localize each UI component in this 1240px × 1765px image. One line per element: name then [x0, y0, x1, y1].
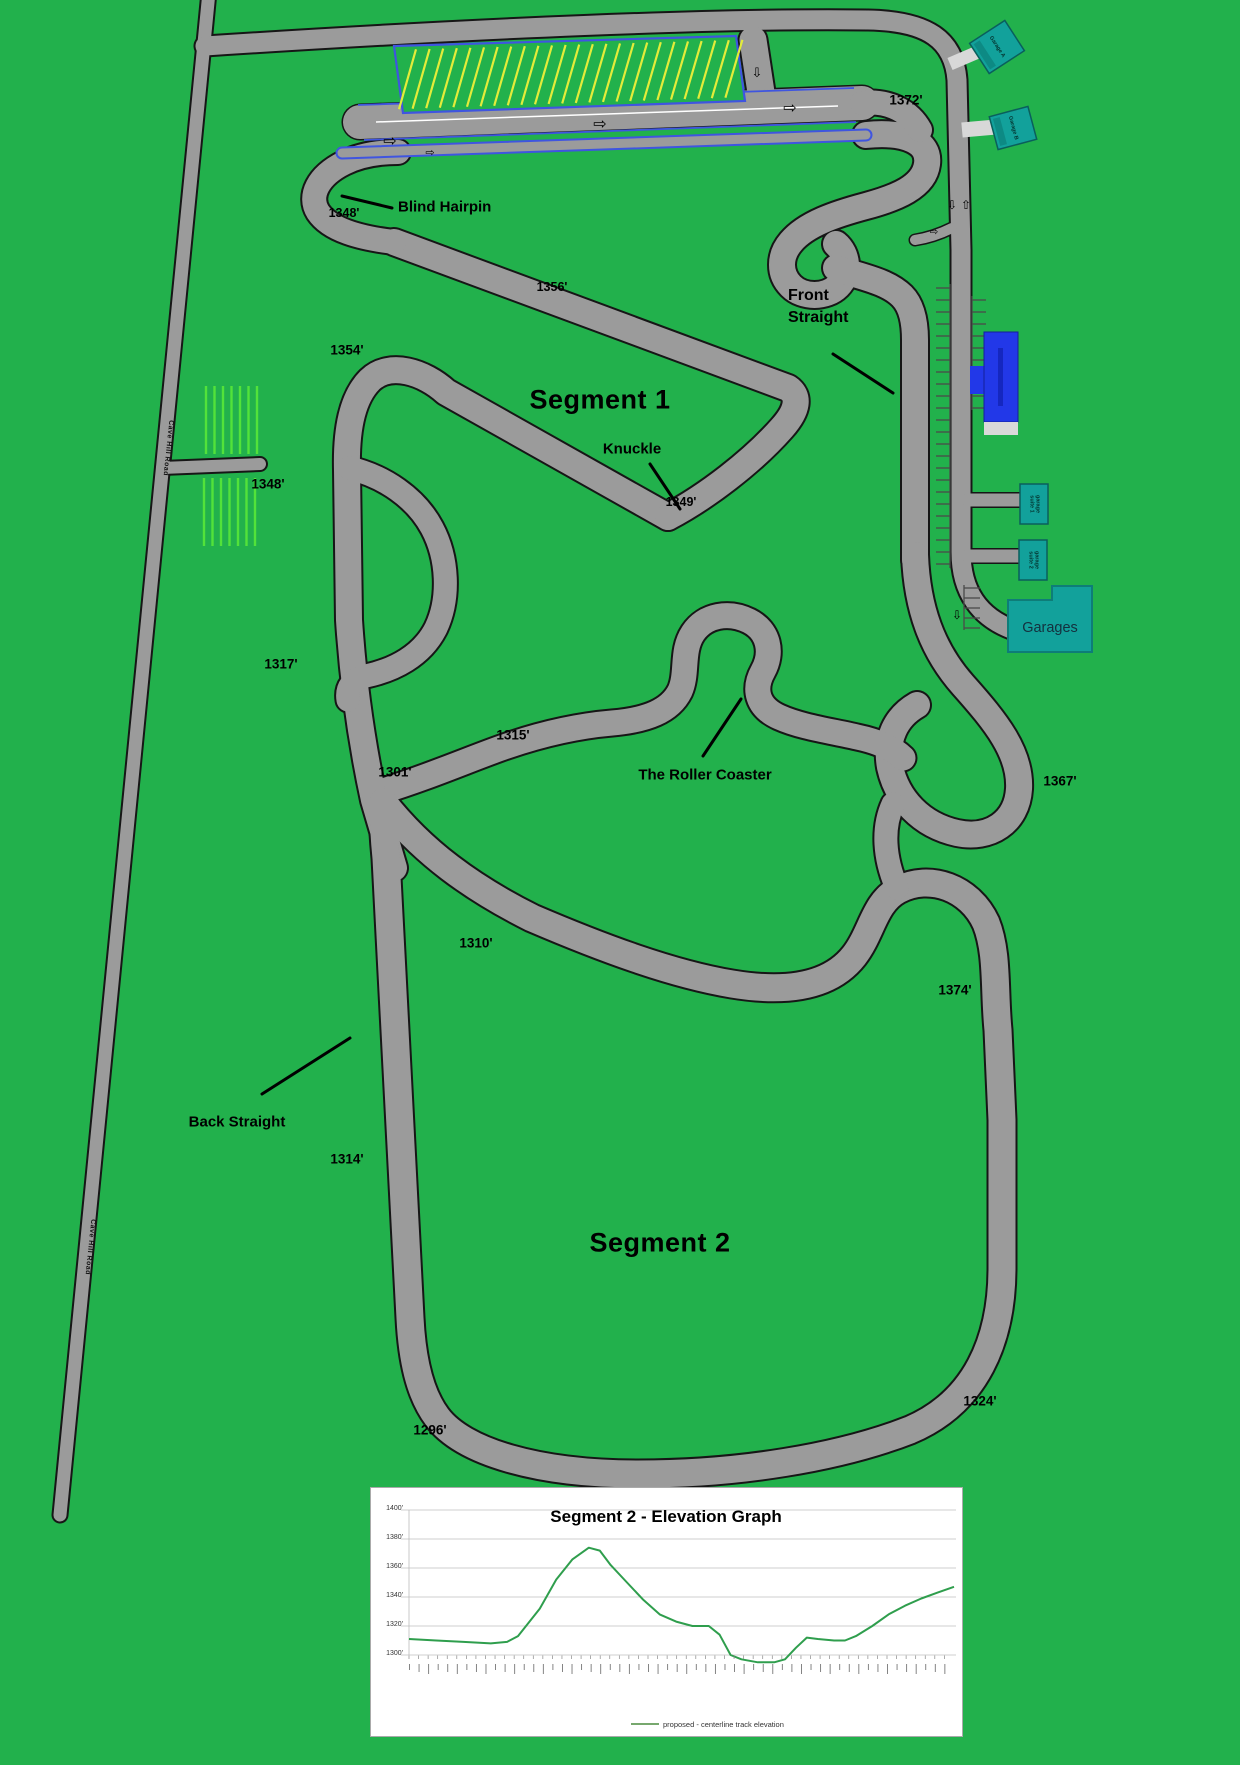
elevation-label-1348-hairpin: 1348' [329, 206, 360, 220]
elevation-label-1356: 1356' [537, 280, 568, 294]
elevation-label-1354: 1354' [330, 343, 363, 358]
elevation-label-1348-west: 1348' [251, 477, 284, 492]
corner-label-front-straight-line2: Straight [788, 309, 848, 327]
elevation-label-1310: 1310' [459, 936, 492, 951]
elevation-label-1315: 1315' [496, 728, 529, 743]
pointer-line-front-straight [833, 354, 893, 393]
access-road [162, 464, 260, 468]
y-tick-1300: 1300' [373, 1650, 403, 1657]
garage-suite-1-label-line1: garage [1034, 495, 1040, 513]
elevation-label-1324: 1324' [963, 1394, 996, 1409]
segment2-loop-casing [383, 802, 1002, 1474]
pointer-line-roller-coaster [703, 699, 741, 756]
elevation-label-1296: 1296' [413, 1423, 446, 1438]
garage-suite-2-label-line2: suite 2 [1027, 551, 1033, 569]
y-tick-1320: 1320' [373, 1621, 403, 1628]
elevation-label-1349: 1349' [666, 495, 697, 509]
track-map: ⇨ ⇨ ⇨ ⇨ ⇩ ⇩ ⇧ ⇨ ⇩ Segment 1 Segment 2 Bl… [0, 0, 1240, 1765]
garages-building [1008, 586, 1092, 652]
blue-building-apron [984, 422, 1018, 435]
elevation-label-1314: 1314' [330, 1152, 363, 1167]
cave-hill-road [60, 0, 209, 1515]
flow-arrow-down-icon: ⇩ [947, 198, 957, 212]
garage-suite-1-label: garage suite 1 [1028, 495, 1041, 513]
flow-arrow-down-icon: ⇩ [752, 66, 763, 81]
segment2-label: Segment 2 [589, 1228, 730, 1259]
corner-label-roller-coaster: The Roller Coaster [638, 767, 771, 784]
garage-b-driveway [962, 127, 996, 130]
y-tick-1340: 1340' [373, 1592, 403, 1599]
corner-label-blind-hairpin: Blind Hairpin [398, 199, 491, 216]
garage-suite-1-label-line2: suite 1 [1028, 495, 1034, 513]
y-tick-1400: 1400' [373, 1505, 403, 1512]
flow-arrow-right-icon: ⇨ [593, 114, 606, 133]
y-tick-1360: 1360' [373, 1563, 403, 1570]
chart-title: Segment 2 - Elevation Graph [550, 1507, 781, 1527]
suite-stubs [968, 500, 1020, 556]
elevation-label-1367: 1367' [1043, 774, 1076, 789]
corner-label-front-straight-line1: Front [788, 287, 829, 305]
elevation-series-line [409, 1548, 954, 1663]
corner-label-back-straight: Back Straight [189, 1114, 286, 1131]
flow-arrow-right-icon: ⇨ [383, 131, 396, 150]
flow-arrow-right-icon: ⇨ [783, 98, 796, 117]
flow-arrow-right-icon: ⇨ [930, 227, 938, 238]
blue-building-sign [998, 348, 1003, 406]
elevation-label-1301: 1301' [378, 765, 411, 780]
elevation-label-1372: 1372' [889, 93, 922, 108]
garage-suite-2-label: garage suite 2 [1027, 551, 1040, 569]
flow-arrow-up-icon: ⇧ [961, 198, 971, 212]
blue-building-wing [970, 366, 984, 394]
road-surfaces [60, 0, 1020, 1515]
chart-legend-label: proposed - centerline track elevation [663, 1720, 784, 1729]
segment-link [886, 804, 897, 888]
garages-label: Garages [1022, 620, 1078, 636]
elevation-label-1317: 1317' [264, 657, 297, 672]
segment1-label: Segment 1 [529, 385, 670, 416]
y-tick-1380: 1380' [373, 1534, 403, 1541]
suite-stub-casing [968, 500, 1020, 556]
elevation-label-1374: 1374' [938, 983, 971, 998]
flow-arrow-down-icon: ⇩ [952, 608, 962, 622]
corner-label-knuckle: Knuckle [603, 441, 661, 458]
elevation-chart: Segment 2 - Elevation Graph 1400' 1380' … [370, 1487, 963, 1737]
garage-suite-2-label-line1: garage [1033, 551, 1039, 569]
flow-arrow-right-icon: ⇨ [425, 146, 434, 159]
pointer-line-back-straight [262, 1038, 350, 1094]
